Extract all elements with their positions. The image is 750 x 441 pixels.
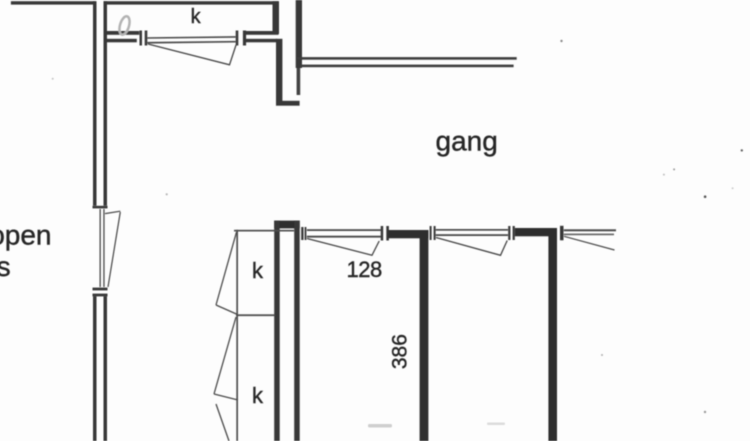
svg-text:k: k: [252, 258, 264, 283]
svg-text:open: open: [0, 220, 51, 251]
svg-text:s: s: [0, 251, 11, 282]
svg-text:128: 128: [347, 257, 382, 282]
svg-text:k: k: [191, 6, 202, 28]
svg-text:386: 386: [388, 334, 411, 369]
svg-text:k: k: [252, 383, 264, 408]
svg-text:gang: gang: [436, 125, 498, 156]
